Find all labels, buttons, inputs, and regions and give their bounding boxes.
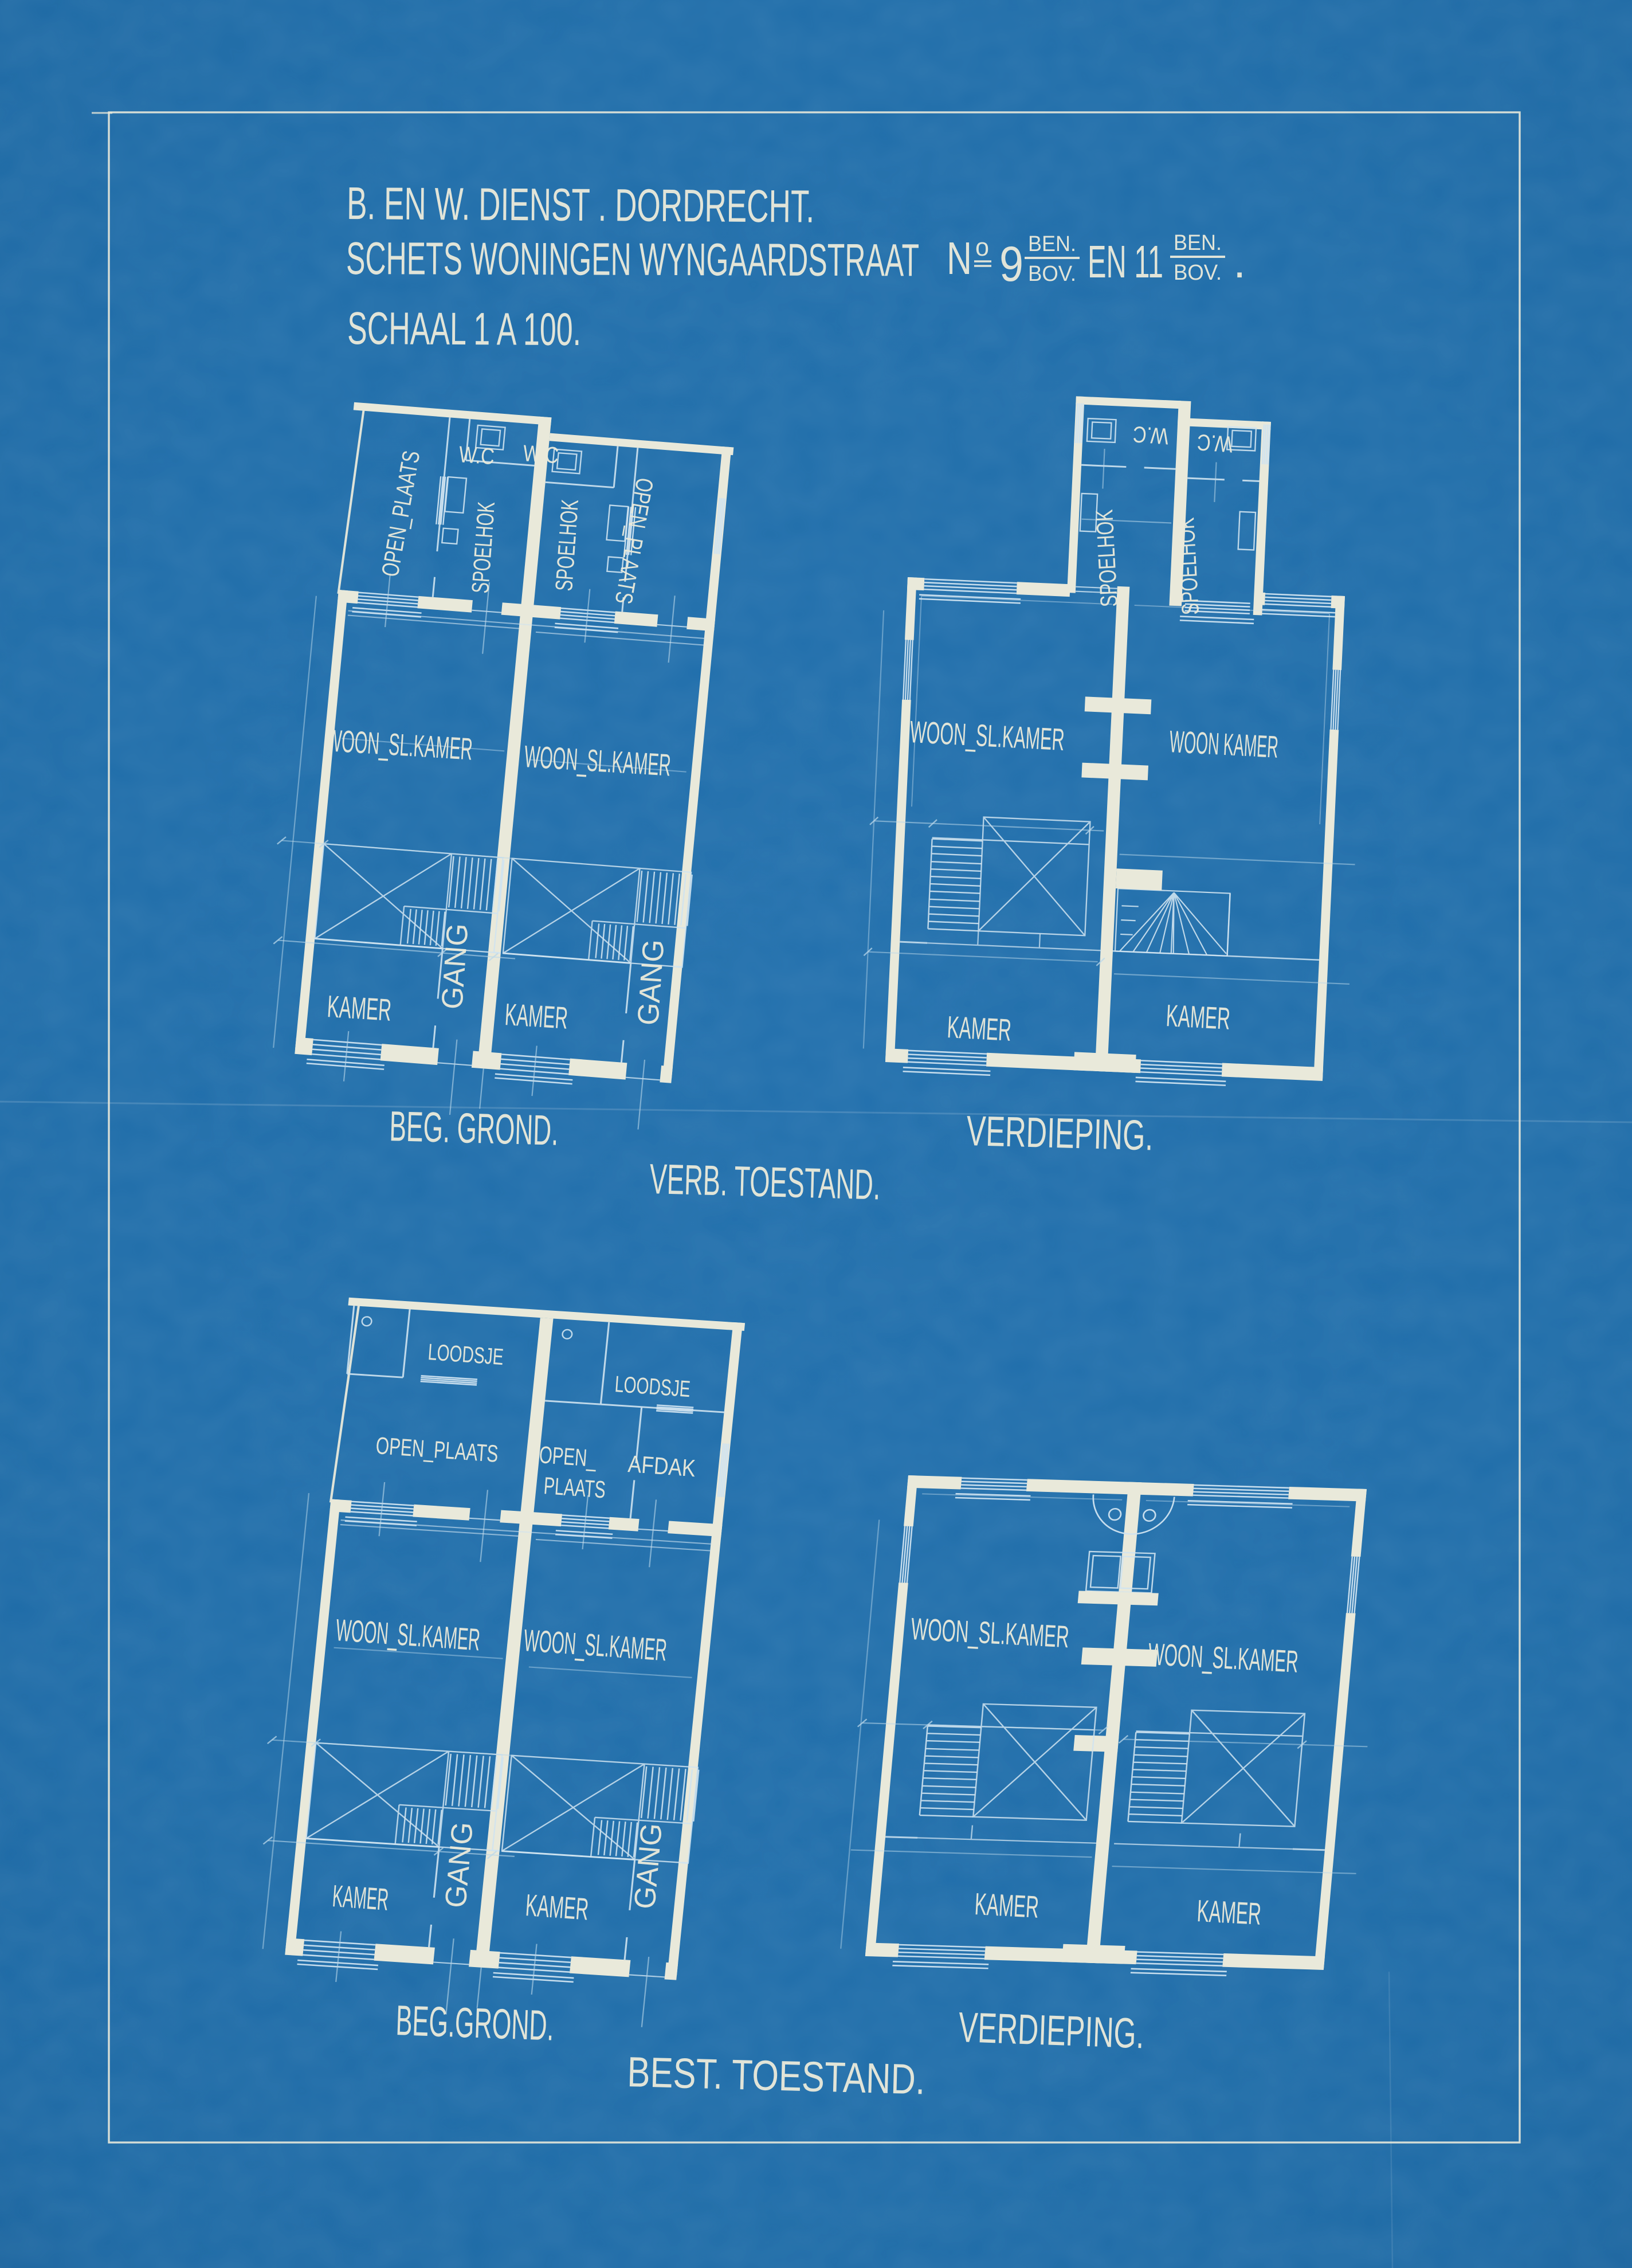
svg-text:PLAATS: PLAATS [543, 1472, 606, 1503]
svg-text:W.C: W.C [1132, 421, 1170, 449]
svg-text:N: N [947, 233, 972, 284]
svg-text:GANG: GANG [436, 922, 474, 1010]
svg-text:SCHETS WONINGEN WYNGAARDSTRAAT: SCHETS WONINGEN WYNGAARDSTRAAT [346, 233, 919, 285]
svg-text:B. EN W. DIENST . DORDRECHT.: B. EN W. DIENST . DORDRECHT. [347, 178, 815, 232]
svg-text:BEG.GROND.: BEG.GROND. [395, 1996, 555, 2050]
svg-text:KAMER: KAMER [504, 997, 568, 1036]
svg-text:VERDIEPING.: VERDIEPING. [966, 1107, 1154, 1160]
svg-text:OPEN_: OPEN_ [538, 1441, 597, 1472]
svg-text:BOV.: BOV. [1174, 261, 1222, 285]
svg-text:WOON KAMER: WOON KAMER [1168, 724, 1279, 765]
svg-text:9: 9 [999, 237, 1023, 292]
svg-text:VERB. TOESTAND.: VERB. TOESTAND. [649, 1155, 881, 1209]
svg-text:BEST. TOESTAND.: BEST. TOESTAND. [627, 2048, 926, 2104]
svg-text:GANG: GANG [631, 938, 670, 1027]
svg-text:AFDAK: AFDAK [627, 1450, 696, 1482]
svg-text:KAMER: KAMER [946, 1010, 1012, 1048]
svg-text:W.C: W.C [1196, 429, 1234, 457]
svg-text:KAMER: KAMER [1196, 1894, 1262, 1932]
svg-text:LOODSJE: LOODSJE [614, 1372, 691, 1402]
svg-text:SPOELHOK: SPOELHOK [1090, 509, 1123, 608]
svg-text:VERDIEPING.: VERDIEPING. [958, 2003, 1145, 2057]
svg-text:BEN.: BEN. [1028, 232, 1076, 256]
svg-text:.: . [1233, 236, 1246, 287]
svg-text:SPOELHOK: SPOELHOK [1172, 517, 1204, 616]
svg-text:BOV.: BOV. [1028, 262, 1076, 286]
svg-text:LOODSJE: LOODSJE [427, 1339, 504, 1370]
svg-text:BEG. GROND.: BEG. GROND. [389, 1102, 559, 1154]
svg-text:KAMER: KAMER [524, 1888, 590, 1927]
svg-text:KAMER: KAMER [1165, 998, 1231, 1036]
svg-text:EN 11: EN 11 [1088, 236, 1163, 287]
svg-text:W.C: W.C [522, 441, 559, 468]
svg-text:SCHAAL 1 A 100.: SCHAAL 1 A 100. [347, 303, 581, 355]
svg-text:BEN.: BEN. [1174, 231, 1222, 255]
svg-text:o: o [975, 233, 989, 261]
svg-text:KAMER: KAMER [326, 989, 392, 1028]
svg-text:W.C: W.C [458, 442, 495, 469]
svg-text:KAMER: KAMER [974, 1887, 1039, 1925]
svg-text:KAMER: KAMER [331, 1879, 390, 1917]
